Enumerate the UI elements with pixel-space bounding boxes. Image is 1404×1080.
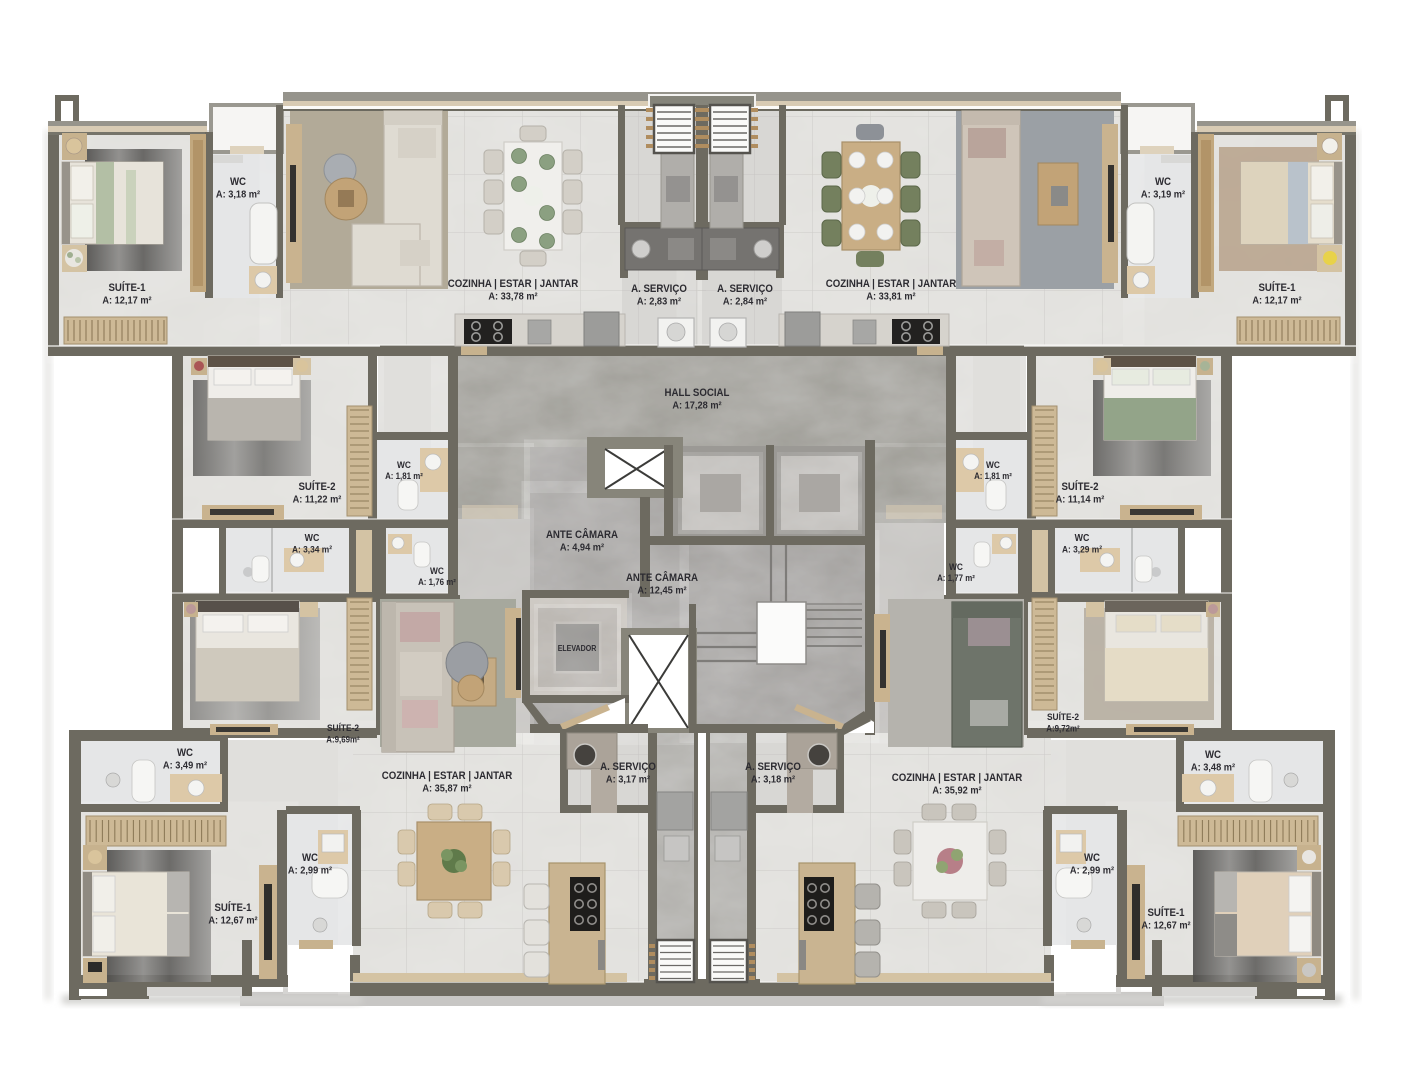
svg-text:A:9,69m²: A:9,69m²: [326, 735, 359, 745]
svg-text:A: 11,22 m²: A: 11,22 m²: [293, 494, 342, 506]
svg-text:SUÍTE-1: SUÍTE-1: [214, 901, 251, 914]
svg-text:A: 3,49 m²: A: 3,49 m²: [163, 760, 208, 772]
svg-text:WC: WC: [1075, 533, 1090, 544]
svg-text:A: 2,83 m²: A: 2,83 m²: [637, 296, 682, 308]
svg-text:COZINHA | ESTAR | JANTAR: COZINHA | ESTAR | JANTAR: [826, 278, 957, 290]
svg-text:A: 3,29 m²: A: 3,29 m²: [1062, 545, 1102, 556]
svg-text:A: 12,17 m²: A: 12,17 m²: [102, 295, 152, 307]
svg-text:A: 3,34 m²: A: 3,34 m²: [292, 545, 332, 556]
svg-text:WC: WC: [302, 852, 318, 864]
svg-text:WC: WC: [430, 566, 444, 577]
svg-text:A: 12,67 m²: A: 12,67 m²: [1141, 920, 1191, 932]
svg-text:A: 3,17 m²: A: 3,17 m²: [606, 774, 651, 786]
svg-text:WC: WC: [949, 562, 963, 573]
svg-text:A: 1,76 m²: A: 1,76 m²: [418, 577, 456, 587]
svg-text:A. SERVIÇO: A. SERVIÇO: [745, 761, 801, 773]
svg-text:WC: WC: [1205, 749, 1221, 761]
svg-text:ANTE CÂMARA: ANTE CÂMARA: [626, 571, 698, 584]
svg-text:A: 1,77 m²: A: 1,77 m²: [937, 573, 975, 583]
svg-text:A: 3,18 m²: A: 3,18 m²: [216, 189, 261, 201]
svg-text:A: 35,92 m²: A: 35,92 m²: [932, 785, 982, 797]
svg-text:A: 2,99 m²: A: 2,99 m²: [288, 865, 333, 877]
svg-text:A: 3,19 m²: A: 3,19 m²: [1141, 189, 1186, 201]
svg-text:A: 12,17 m²: A: 12,17 m²: [1252, 295, 1302, 307]
svg-text:A: 4,94 m²: A: 4,94 m²: [560, 542, 605, 554]
svg-text:A. SERVIÇO: A. SERVIÇO: [717, 283, 773, 295]
svg-text:A: 1,81 m²: A: 1,81 m²: [974, 471, 1012, 481]
svg-text:ANTE CÂMARA: ANTE CÂMARA: [546, 528, 618, 541]
svg-text:A: 3,18 m²: A: 3,18 m²: [751, 774, 796, 786]
svg-text:SUÍTE-2: SUÍTE-2: [1047, 712, 1079, 723]
svg-text:WC: WC: [986, 460, 1000, 471]
svg-text:WC: WC: [305, 533, 320, 544]
svg-text:A: 12,67 m²: A: 12,67 m²: [208, 915, 258, 927]
svg-text:A: 3,48 m²: A: 3,48 m²: [1191, 762, 1236, 774]
svg-text:A: 2,99 m²: A: 2,99 m²: [1070, 865, 1115, 877]
svg-text:A: 17,28 m²: A: 17,28 m²: [672, 400, 722, 412]
svg-text:WC: WC: [230, 176, 246, 188]
svg-text:WC: WC: [1155, 176, 1171, 188]
svg-text:A. SERVIÇO: A. SERVIÇO: [631, 283, 687, 295]
svg-text:A: 2,84 m²: A: 2,84 m²: [723, 296, 768, 308]
svg-text:SUÍTE-2: SUÍTE-2: [327, 723, 359, 734]
svg-text:SUÍTE-1: SUÍTE-1: [1258, 281, 1295, 294]
svg-text:A:9,72m²: A:9,72m²: [1046, 724, 1079, 734]
svg-text:WC: WC: [1084, 852, 1100, 864]
svg-text:COZINHA | ESTAR | JANTAR: COZINHA | ESTAR | JANTAR: [892, 772, 1023, 784]
svg-text:COZINHA | ESTAR | JANTAR: COZINHA | ESTAR | JANTAR: [382, 770, 513, 782]
svg-text:WC: WC: [397, 460, 411, 471]
svg-text:A: 33,78 m²: A: 33,78 m²: [488, 291, 538, 303]
svg-text:WC: WC: [177, 747, 193, 759]
svg-text:A: 12,45 m²: A: 12,45 m²: [637, 585, 687, 597]
svg-text:A: 33,81 m²: A: 33,81 m²: [866, 291, 916, 303]
svg-text:A: 35,87 m²: A: 35,87 m²: [422, 783, 472, 795]
svg-text:A. SERVIÇO: A. SERVIÇO: [600, 761, 656, 773]
svg-text:ELEVADOR: ELEVADOR: [558, 644, 597, 653]
svg-text:SUÍTE-1: SUÍTE-1: [108, 281, 145, 294]
svg-text:A: 1,81 m²: A: 1,81 m²: [385, 471, 423, 481]
svg-text:A: 11,14 m²: A: 11,14 m²: [1056, 494, 1105, 506]
svg-text:COZINHA | ESTAR | JANTAR: COZINHA | ESTAR | JANTAR: [448, 278, 579, 290]
svg-text:SUÍTE-2: SUÍTE-2: [1061, 480, 1098, 493]
svg-text:SUÍTE-2: SUÍTE-2: [298, 480, 335, 493]
svg-text:SUÍTE-1: SUÍTE-1: [1147, 906, 1184, 919]
svg-text:HALL SOCIAL: HALL SOCIAL: [665, 387, 730, 399]
